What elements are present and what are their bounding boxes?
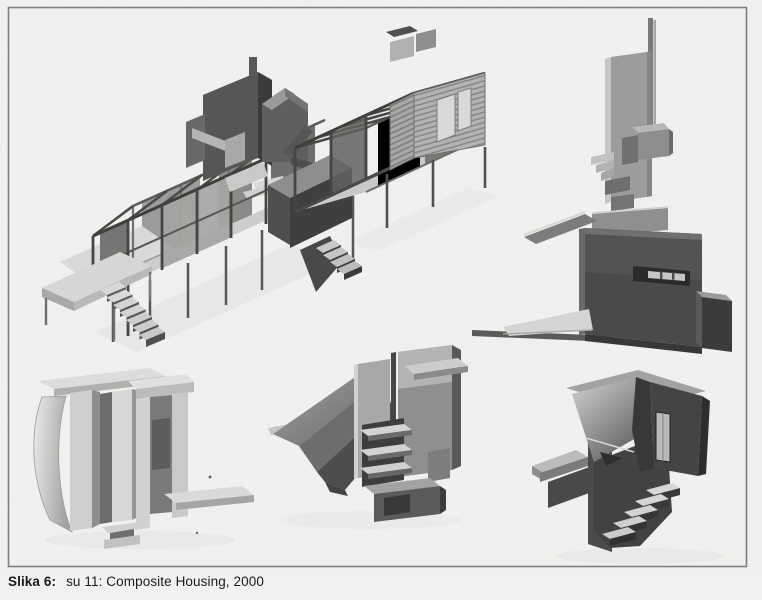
slat-panel-side	[390, 93, 414, 170]
scanned-page: Slika 6:su 11: Composite Housing, 2000	[0, 0, 762, 600]
shelf-stack	[360, 424, 412, 479]
figure-image	[0, 0, 762, 572]
caption-text: su 11: Composite Housing, 2000	[66, 574, 264, 589]
caption-label: Slika 6:	[8, 574, 56, 589]
figure-caption: Slika 6:su 11: Composite Housing, 2000	[8, 572, 748, 592]
